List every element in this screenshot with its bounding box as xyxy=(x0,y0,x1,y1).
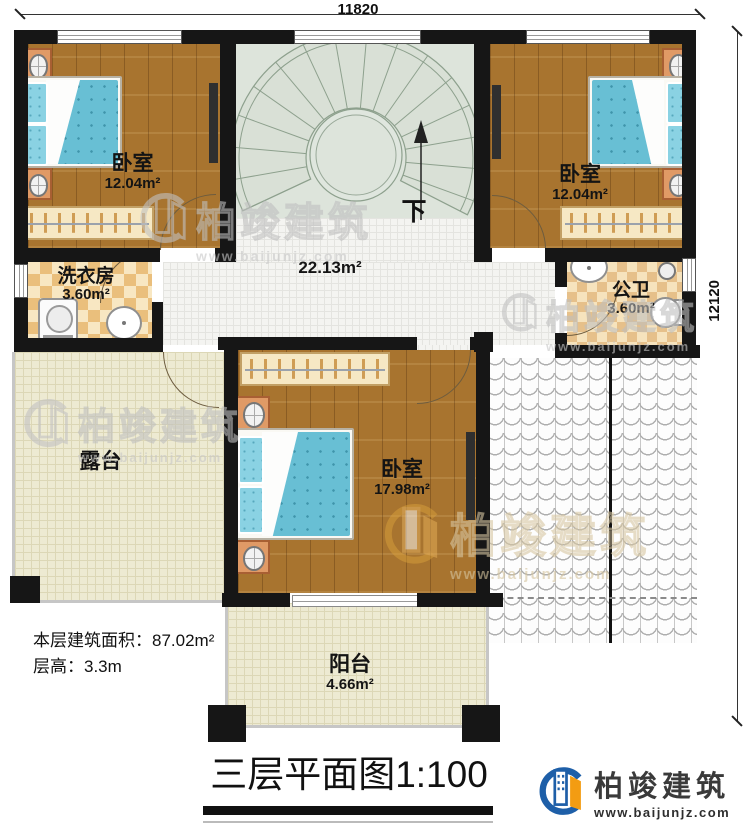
floor-height-value: 3.3m xyxy=(84,657,122,676)
window xyxy=(294,30,421,44)
wall xyxy=(215,248,236,262)
wall xyxy=(220,30,236,262)
room-area: 3.60m² xyxy=(593,301,669,318)
room-name: 卧室 xyxy=(348,458,456,482)
washer-drum xyxy=(46,305,72,333)
room-name: 洗衣房 xyxy=(45,266,127,287)
plan-title: 三层平面图1:100 xyxy=(203,744,495,798)
tv-panel xyxy=(209,83,218,163)
tv-panel xyxy=(492,85,501,159)
wall xyxy=(555,262,567,287)
wall xyxy=(545,248,696,262)
lamp-icon xyxy=(29,54,49,78)
drain-icon xyxy=(587,266,591,270)
window xyxy=(526,30,650,44)
wall xyxy=(218,337,417,350)
dimension-right-value: 12120 xyxy=(706,280,723,322)
brand-logo-icon xyxy=(536,765,588,819)
floor-height-note: 层高：3.3m xyxy=(33,652,122,677)
wardrobe xyxy=(240,352,390,386)
pillow xyxy=(238,436,264,484)
wall xyxy=(224,350,238,607)
sliding-door xyxy=(292,595,418,607)
wall xyxy=(222,593,290,607)
room-area: 12.04m² xyxy=(530,187,630,204)
window xyxy=(14,264,28,298)
roof-area xyxy=(487,358,697,643)
window xyxy=(57,30,182,44)
plan-scale: 1:100 xyxy=(395,754,488,795)
bed xyxy=(234,428,354,540)
spiral-staircase xyxy=(236,44,474,218)
window xyxy=(682,258,696,292)
room-label-laundry: 洗衣房 3.60m² xyxy=(45,266,127,304)
pillar xyxy=(208,705,246,742)
room-label-terrace: 露台 xyxy=(58,450,143,474)
plan-title-text: 三层平面图 xyxy=(210,754,395,795)
room-label-bathroom: 公卫 3.60m² xyxy=(593,280,669,318)
nightstand xyxy=(236,540,270,574)
wall-corner-terrace xyxy=(10,576,40,603)
room-label-bedroom-tl: 卧室 12.04m² xyxy=(85,152,180,192)
bed xyxy=(588,76,690,168)
pillow xyxy=(238,486,264,534)
floor-plan: 下 xyxy=(0,0,750,833)
floor-area-value: 87.02m² xyxy=(152,631,214,650)
wall xyxy=(555,345,700,358)
room-label-hall: 22.13m² xyxy=(290,258,370,277)
dimension-right-line xyxy=(737,32,738,722)
title-underline-bar xyxy=(203,806,493,815)
wardrobe xyxy=(560,206,690,240)
room-area: 17.98m² xyxy=(348,482,456,499)
wall xyxy=(474,30,490,262)
room-area: 12.04m² xyxy=(85,176,180,193)
wall xyxy=(417,593,503,607)
room-name: 公卫 xyxy=(593,280,669,301)
drain-icon xyxy=(122,321,126,325)
title-underline-thin xyxy=(203,821,493,823)
wall xyxy=(474,248,492,262)
room-name: 卧室 xyxy=(530,163,630,187)
dimension-top-value: 11820 xyxy=(328,1,388,18)
nightstand xyxy=(236,396,270,432)
brand-name: 柏竣建筑 xyxy=(594,763,730,805)
floor-height-label: 层高： xyxy=(33,657,84,676)
washing-machine xyxy=(38,298,78,342)
lamp-icon xyxy=(243,402,265,428)
wall xyxy=(419,30,526,44)
room-label-balcony: 阳台 4.66m² xyxy=(300,653,400,693)
pillar xyxy=(462,705,500,742)
room-label-bedroom-tr: 卧室 12.04m² xyxy=(530,163,630,203)
wall xyxy=(14,248,160,262)
dimension-top-line xyxy=(20,14,700,15)
roof-ridge-line xyxy=(609,358,612,643)
tv-panel xyxy=(466,432,475,520)
floor-area-label: 本层建筑面积： xyxy=(33,631,152,650)
brand-url: www.baijunjz.com xyxy=(594,805,730,820)
wardrobe-rail xyxy=(565,223,686,225)
wall xyxy=(682,30,696,358)
stair-direction-label: 下 xyxy=(398,192,430,228)
room-area: 3.60m² xyxy=(45,287,127,304)
room-name: 露台 xyxy=(58,450,143,474)
wardrobe-rail xyxy=(245,369,385,371)
room-area: 4.66m² xyxy=(300,677,400,694)
room-area: 22.13m² xyxy=(290,258,370,277)
wall xyxy=(470,337,490,350)
wall xyxy=(476,350,490,607)
brand-logo: 柏竣建筑 www.baijunjz.com xyxy=(536,763,730,820)
laundry-sink xyxy=(106,306,142,340)
wardrobe xyxy=(20,206,154,240)
lamp-icon xyxy=(29,174,49,197)
wardrobe-rail xyxy=(25,223,150,225)
shower-head-icon xyxy=(658,262,676,280)
room-name: 卧室 xyxy=(85,152,180,176)
wall xyxy=(14,30,28,352)
room-label-bedroom-bottom: 卧室 17.98m² xyxy=(348,458,456,498)
floor-area-note: 本层建筑面积：87.02m² xyxy=(33,626,214,651)
roof-dashed-line xyxy=(487,597,697,599)
wall xyxy=(180,30,294,44)
lamp-icon xyxy=(243,546,265,570)
wall xyxy=(14,338,163,352)
room-name: 阳台 xyxy=(300,653,400,677)
